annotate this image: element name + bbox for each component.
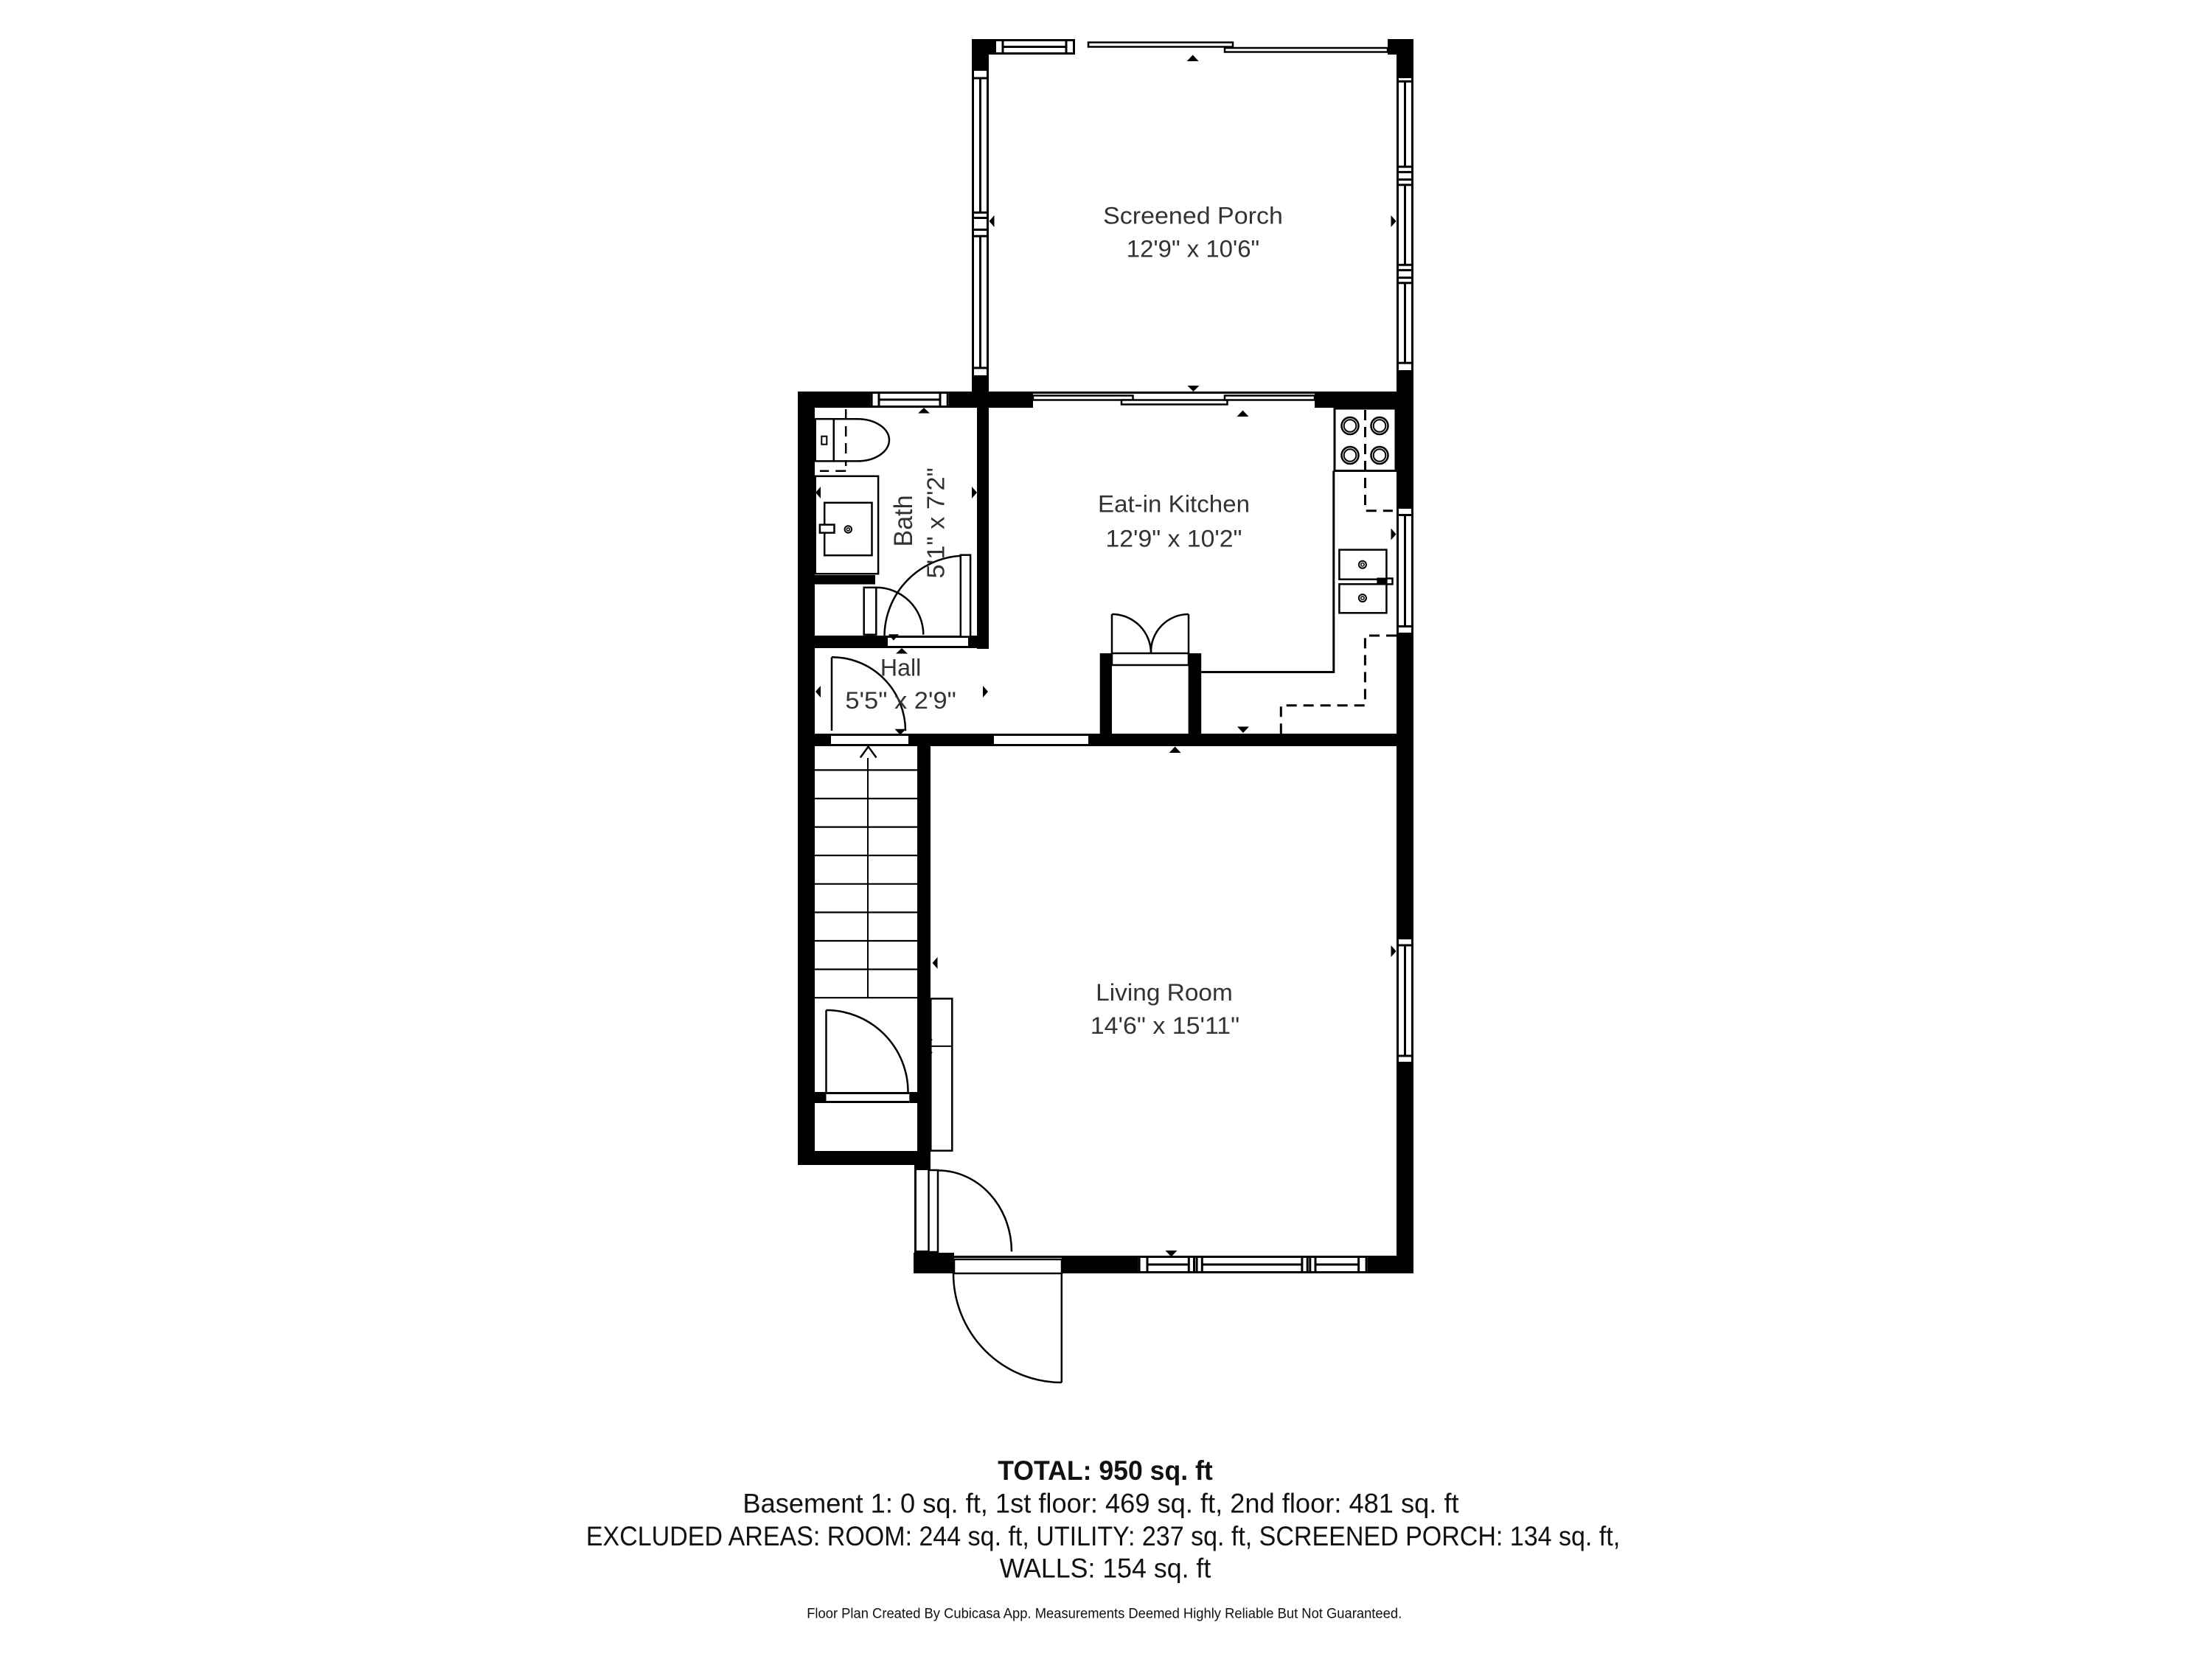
svg-text:5'5" x 2'9": 5'5" x 2'9" — [845, 687, 956, 714]
svg-text:WALLS: 154 sq. ft: WALLS: 154 sq. ft — [1000, 1554, 1211, 1584]
svg-text:Floor Plan Created By Cubicasa: Floor Plan Created By Cubicasa App. Meas… — [807, 1607, 1402, 1622]
svg-text:TOTAL: 950 sq. ft: TOTAL: 950 sq. ft — [998, 1455, 1213, 1486]
svg-text:Bath: Bath — [889, 495, 918, 547]
svg-text:EXCLUDED AREAS: ROOM: 244 sq.: EXCLUDED AREAS: ROOM: 244 sq. ft, UTILIT… — [586, 1521, 1620, 1551]
svg-text:Basement 1: 0 sq. ft, 1st floo: Basement 1: 0 sq. ft, 1st floor: 469 sq.… — [742, 1489, 1459, 1519]
svg-text:Hall: Hall — [880, 654, 921, 681]
svg-text:5'1" x 7'2": 5'1" x 7'2" — [922, 467, 950, 578]
svg-text:12'9" x 10'2": 12'9" x 10'2" — [1106, 525, 1242, 552]
svg-text:Screened Porch: Screened Porch — [1103, 203, 1283, 229]
svg-text:14'6" x 15'11": 14'6" x 15'11" — [1091, 1012, 1239, 1039]
svg-text:Eat-in Kitchen: Eat-in Kitchen — [1098, 491, 1250, 518]
svg-text:12'9" x 10'6": 12'9" x 10'6" — [1127, 236, 1259, 262]
svg-text:Living Room: Living Room — [1096, 979, 1233, 1006]
